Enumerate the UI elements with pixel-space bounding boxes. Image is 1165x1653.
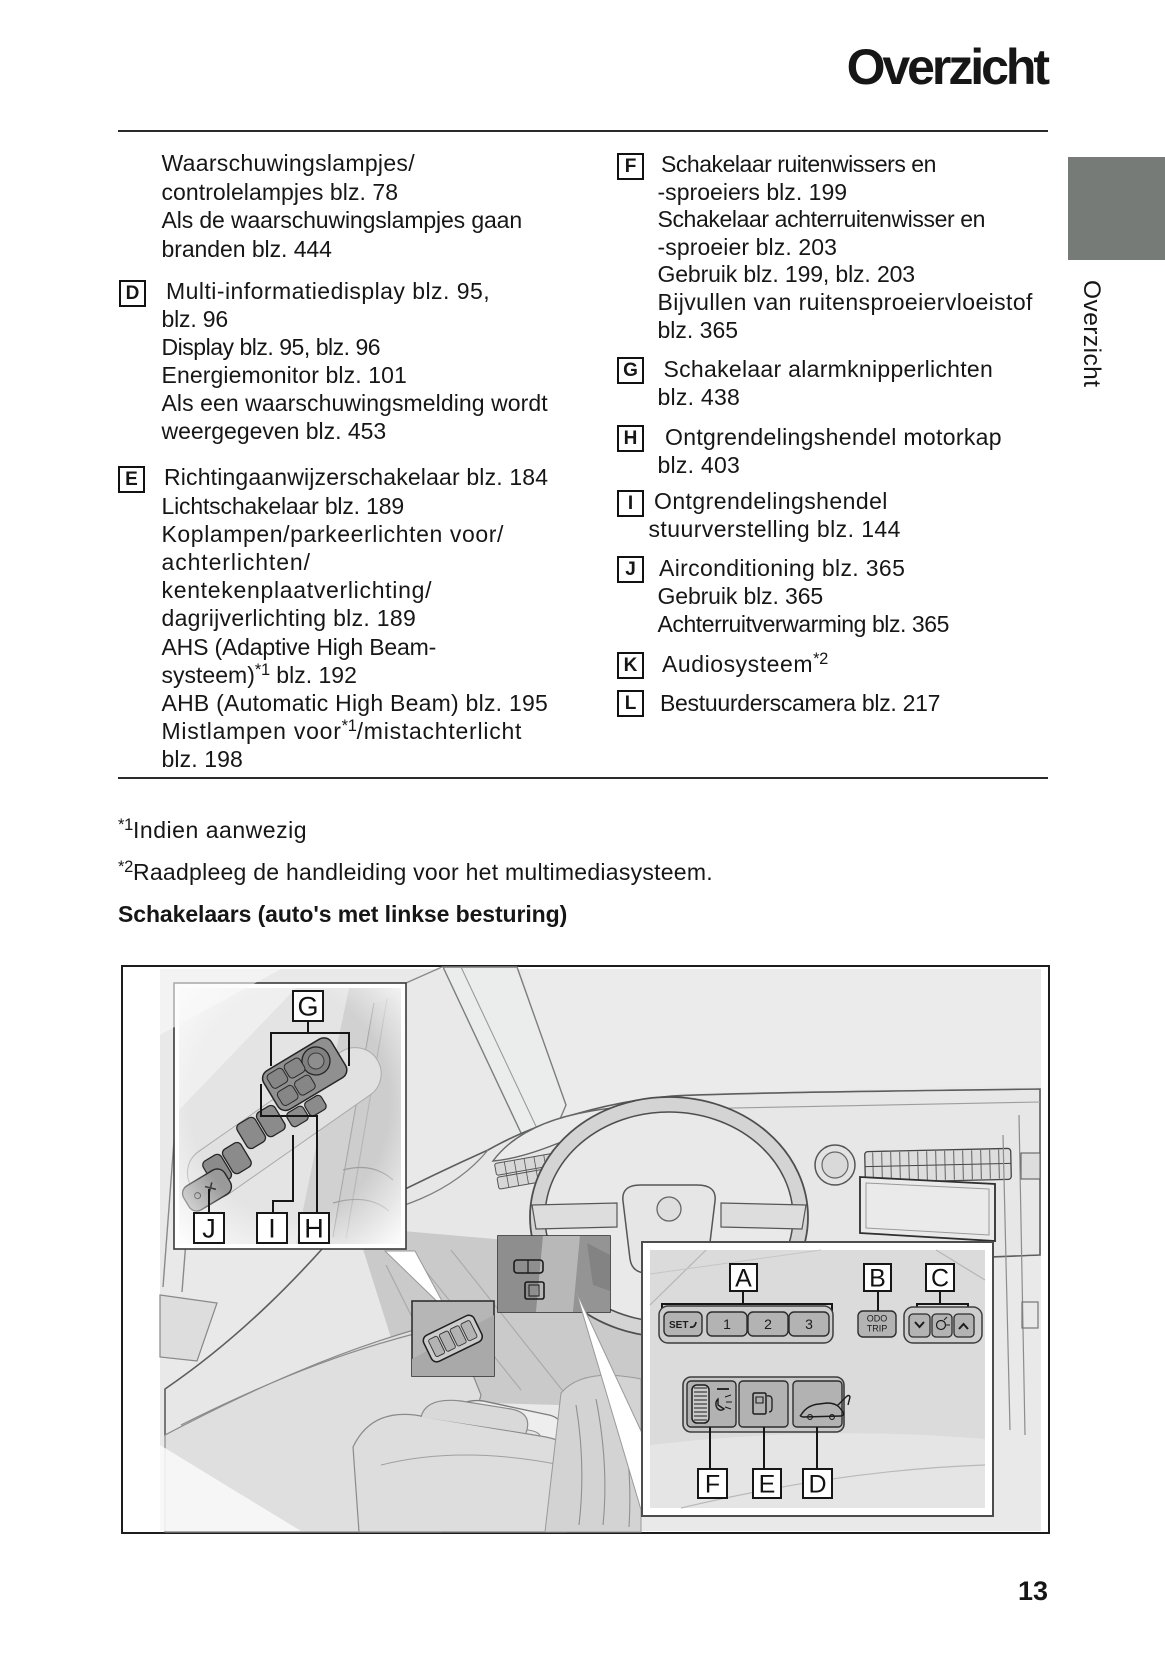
svg-text:J: J: [202, 1214, 216, 1244]
svg-text:A: A: [735, 1265, 752, 1293]
svg-text:F: F: [705, 1471, 720, 1499]
svg-text:TRIP: TRIP: [867, 1324, 888, 1334]
svg-text:ODO: ODO: [867, 1314, 888, 1324]
svg-text:H: H: [304, 1214, 324, 1244]
svg-text:C: C: [931, 1265, 949, 1293]
svg-text:2: 2: [764, 1316, 772, 1332]
svg-text:SET: SET: [669, 1320, 688, 1331]
svg-text:D: D: [808, 1471, 826, 1499]
svg-text:G: G: [297, 992, 318, 1022]
svg-text:E: E: [759, 1471, 776, 1499]
svg-text:I: I: [268, 1214, 276, 1244]
svg-text:3: 3: [805, 1316, 813, 1332]
svg-text:B: B: [869, 1265, 886, 1293]
svg-text:1: 1: [723, 1316, 731, 1332]
